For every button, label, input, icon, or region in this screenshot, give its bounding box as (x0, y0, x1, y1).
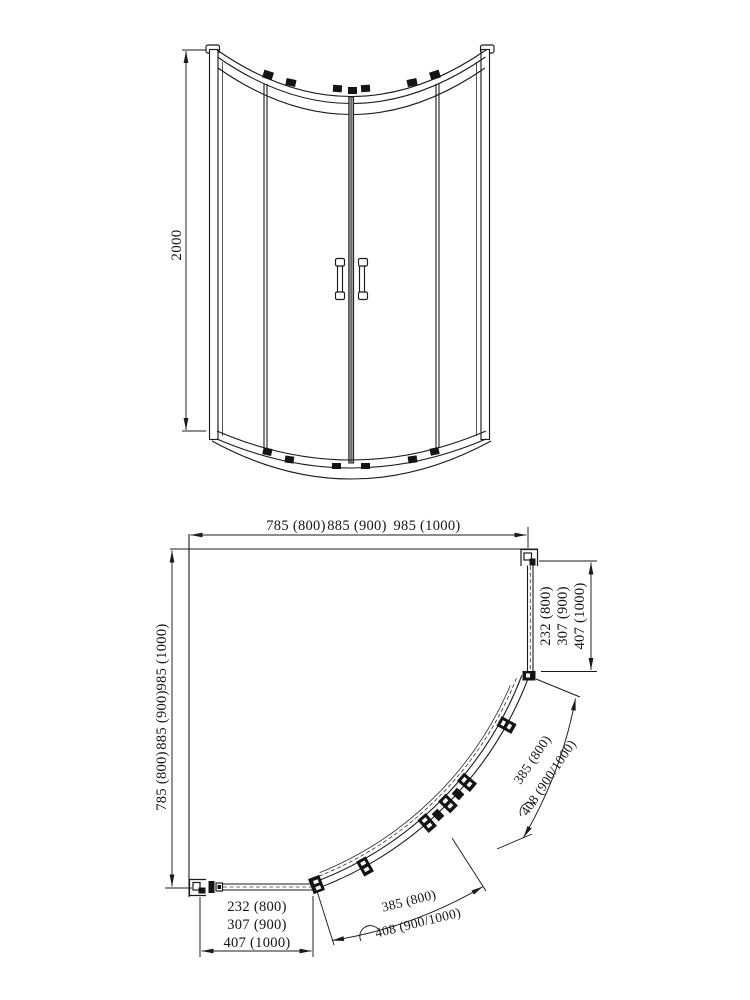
roller-lower (356, 856, 374, 876)
front-panel-dim-800: 232 (800) (227, 899, 286, 915)
wall-jamb-left (206, 45, 223, 440)
front-panel-dim-1000: 407 (1000) (223, 935, 290, 951)
plan-depth-dim-800: 785 (800) (154, 751, 170, 810)
side-panel-dim-800: 232 (800) (538, 586, 554, 645)
door-arc-dimension-bottom: 385 (800) 408 (900/1000) (317, 838, 486, 945)
front-panel-dimension: 232 (800) 307 (900) 407 (1000) (200, 896, 313, 957)
door-handle-right (359, 259, 368, 300)
side-panel-dim-1000: 407 (1000) (572, 582, 588, 649)
curved-door-track (315, 675, 528, 888)
roller-upper (496, 716, 516, 734)
plan-depth-dim-1000: 985 (1000) (154, 623, 170, 690)
roller-centre-1 (457, 773, 477, 792)
wall-jamb-right (477, 45, 495, 440)
plan-width-dim-1000: 985 (1000) (393, 518, 460, 534)
front-height-dimension: 2000 (169, 50, 209, 431)
door-handle-left (336, 259, 345, 300)
plan-width-dimension: 785 (800) 885 (900) 985 (1000) (191, 518, 529, 548)
side-panel-end-bracket (523, 671, 536, 681)
door-arc-bottom-dim-800: 385 (800) (380, 887, 438, 915)
header-roller-brackets (262, 70, 441, 94)
side-fixed-panel (521, 550, 538, 681)
side-panel-dim-900: 307 (900) (555, 586, 571, 645)
plan-width-dim-800: 785 (800) (266, 518, 325, 534)
front-elevation-view: 2000 (169, 45, 494, 479)
plan-depth-dim-900: 885 (900) (154, 690, 170, 749)
front-height-dim-label: 2000 (169, 229, 185, 260)
side-panel-dimension: 232 (800) 307 (900) 407 (1000) (538, 561, 597, 672)
plan-view: 785 (800) 885 (900) 985 (1000) 985 (1000… (154, 518, 597, 957)
front-fixed-panel (190, 880, 314, 896)
plan-depth-dimension: 985 (1000) 885 (900) 785 (800) (154, 551, 192, 889)
plan-width-dim-900: 885 (900) (327, 518, 386, 534)
drawing-canvas: 2000 (0, 0, 750, 1000)
front-panel-dim-900: 307 (900) (227, 917, 286, 933)
technical-drawing-page: 2000 (0, 0, 750, 1000)
